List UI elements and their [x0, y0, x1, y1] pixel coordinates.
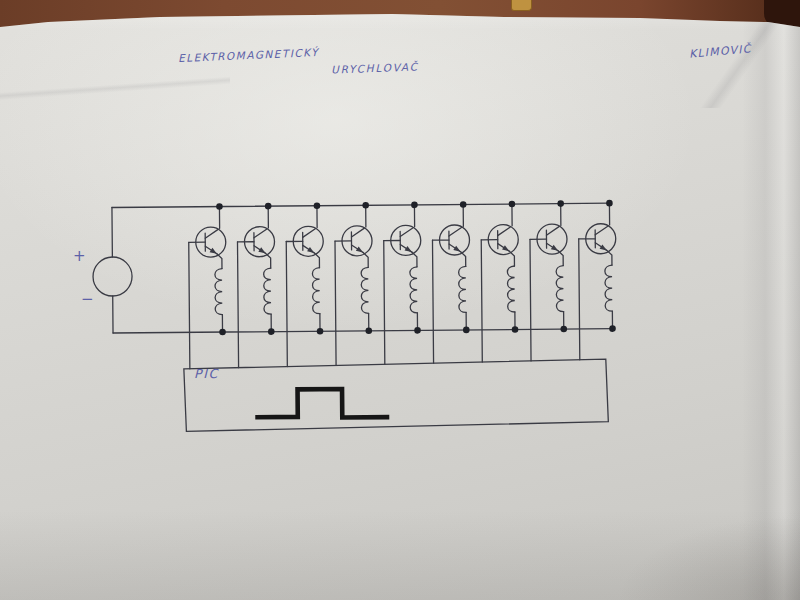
stage-8	[530, 204, 568, 361]
collector-lead	[546, 226, 559, 235]
battery-minus-label: −	[81, 290, 94, 308]
dc-source	[92, 207, 132, 333]
collector-lead	[595, 226, 608, 235]
stage-2	[237, 206, 275, 368]
stage-4	[335, 205, 373, 365]
pulse-waveform	[255, 389, 389, 419]
bottom-junction-dot	[560, 326, 567, 333]
collector-lead	[498, 227, 511, 236]
wires	[92, 203, 617, 432]
paper-sheet: ELEKTROMAGNETICKÝ URYCHLOVAČ KLIMOVIČ + …	[0, 0, 800, 600]
coil	[361, 267, 369, 313]
emitter-arrow-icon	[405, 246, 412, 252]
photo-scene: ELEKTROMAGNETICKÝ URYCHLOVAČ KLIMOVIČ + …	[0, 0, 800, 600]
emitter-arrow-icon	[356, 246, 363, 252]
top-junction-dot	[411, 202, 418, 209]
pic-box	[184, 359, 609, 431]
top-junction-dot	[362, 202, 369, 209]
top-junction-dot	[265, 203, 272, 210]
stage-9	[578, 203, 616, 360]
base-drive-wire	[481, 240, 482, 362]
bottom-rail	[113, 329, 612, 333]
stage-5	[383, 205, 421, 364]
base-drive-wire	[384, 241, 385, 365]
base-drive-wire	[286, 241, 287, 366]
top-junction-dot	[509, 201, 516, 208]
bottom-junction-dot	[463, 327, 470, 334]
stage-7	[481, 204, 519, 362]
bottom-junction-dot	[219, 329, 226, 336]
coil	[507, 266, 515, 312]
top-junction-dot	[606, 200, 613, 207]
stage-1	[188, 207, 226, 369]
top-junction-dot	[460, 201, 467, 208]
junction-dots	[216, 200, 616, 336]
coil	[556, 266, 564, 312]
collector-lead	[254, 229, 267, 238]
emitter-arrow-icon	[502, 245, 509, 251]
base-drive-wire	[530, 239, 531, 361]
coil	[312, 268, 320, 314]
bottom-junction-dot	[317, 328, 324, 335]
battery-plus-label: +	[73, 247, 86, 265]
emitter-arrow-icon	[453, 246, 460, 252]
collector-lead	[400, 228, 413, 237]
stage-3	[286, 206, 324, 367]
coil	[215, 269, 223, 315]
top-junction-dot	[314, 202, 321, 209]
bottom-junction-dot	[414, 327, 421, 334]
emitter-arrow-icon	[551, 245, 558, 251]
stage-6	[432, 204, 470, 363]
base-drive-wire	[189, 242, 190, 368]
circuit-schematic	[0, 0, 800, 600]
collector-lead	[351, 228, 364, 237]
bottom-junction-dot	[365, 327, 372, 334]
pic-label: PIC	[194, 366, 219, 381]
emitter-arrow-icon	[210, 248, 217, 254]
coil	[605, 265, 613, 311]
coil	[264, 268, 272, 314]
bottom-junction-dot	[268, 328, 275, 335]
base-drive-wire	[237, 242, 238, 368]
collector-lead	[449, 227, 462, 236]
base-drive-wire	[432, 240, 433, 363]
bottom-junction-dot	[609, 325, 616, 332]
emitter-arrow-icon	[600, 244, 607, 250]
base-drive-wire	[579, 239, 580, 360]
top-junction-dot	[216, 203, 223, 210]
coil	[410, 267, 418, 313]
collector-lead	[303, 229, 316, 238]
collector-lead	[205, 229, 218, 238]
coil	[459, 266, 467, 312]
source-circle	[93, 257, 132, 296]
top-rail	[112, 203, 609, 207]
base-drive-wire	[335, 241, 336, 365]
wood-chip	[511, 0, 532, 11]
top-junction-dot	[557, 200, 564, 207]
bottom-junction-dot	[512, 326, 519, 333]
emitter-arrow-icon	[307, 247, 314, 253]
emitter-arrow-icon	[258, 247, 265, 253]
